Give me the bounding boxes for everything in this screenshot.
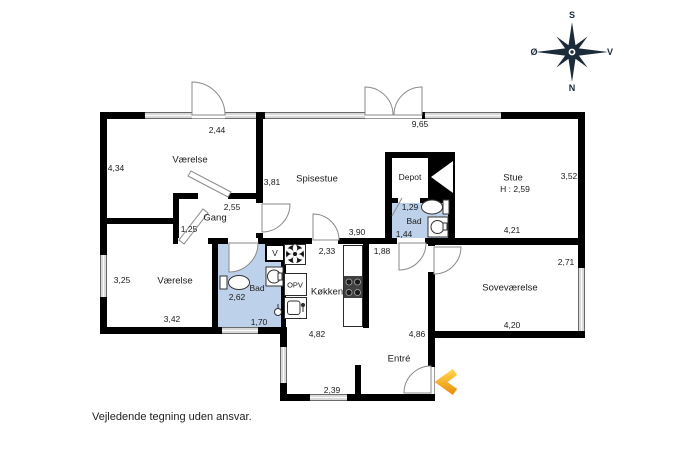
dimension: 2,44 bbox=[209, 126, 226, 135]
dimension: 9,65 bbox=[412, 120, 429, 129]
room-label-koekken: Køkken bbox=[311, 287, 343, 297]
dimension: 2,33 bbox=[319, 247, 336, 256]
dimension: 3,25 bbox=[114, 276, 131, 285]
toilet-icon bbox=[220, 276, 250, 290]
compass-north-label: N bbox=[569, 83, 576, 93]
dimension: 2,62 bbox=[229, 293, 246, 302]
room-label-depot: Depot bbox=[399, 173, 422, 182]
dimension: 1,25 bbox=[181, 225, 198, 234]
room-label-gang: Gang bbox=[203, 213, 226, 223]
dimension: 1,70 bbox=[251, 318, 268, 327]
dimension: 4,86 bbox=[409, 330, 426, 339]
entrance-arrow-icon bbox=[441, 372, 455, 392]
dimension: 3,81 bbox=[264, 178, 281, 187]
extractor-fan-icon bbox=[286, 245, 305, 264]
compass-west-label: V bbox=[607, 47, 613, 57]
room-label-stue: Stue bbox=[503, 173, 523, 183]
room-label-sovevaerelse: Soveværelse bbox=[482, 283, 537, 293]
room-label-bad-mid: Bad bbox=[406, 217, 421, 226]
ceiling-height-label: H : 2,59 bbox=[500, 185, 530, 194]
washing-machine-label: V bbox=[272, 249, 278, 258]
dimension: 1,29 bbox=[402, 203, 419, 212]
dimension: 2,71 bbox=[558, 258, 575, 267]
dimension: 4,34 bbox=[108, 164, 125, 173]
room-label-spisestue: Spisestue bbox=[296, 174, 338, 184]
dimension: 3,42 bbox=[164, 315, 181, 324]
hand-basin-icon bbox=[428, 217, 448, 237]
shower-tap-icon bbox=[275, 304, 282, 316]
toilet-icon bbox=[422, 200, 450, 214]
floor-plan-page: S V N Ø Værelse Spisestue Stue H : 2,59 … bbox=[0, 0, 687, 457]
room-label-vaerelse-sw: Værelse bbox=[157, 276, 192, 286]
dimension: 2,39 bbox=[324, 386, 341, 395]
dimension: 4,20 bbox=[504, 321, 521, 330]
compass-east-label: Ø bbox=[530, 47, 537, 57]
dimension: 4,21 bbox=[504, 226, 521, 235]
dimension: 3,90 bbox=[349, 228, 366, 237]
depot-door-leaf bbox=[431, 161, 453, 193]
dimension: 3,52 bbox=[561, 172, 578, 181]
dishwasher-label: OPV bbox=[287, 281, 303, 289]
stove-icon bbox=[344, 276, 362, 298]
room-label-vaerelse-nw: Værelse bbox=[172, 155, 207, 165]
dimension: 1,44 bbox=[396, 230, 413, 239]
compass-south-label: S bbox=[569, 10, 575, 20]
dimension: 2,55 bbox=[224, 203, 241, 212]
kitchen-sink-icon bbox=[288, 301, 305, 315]
room-label-entre: Entré bbox=[388, 354, 411, 364]
compass-rose: S V N Ø bbox=[530, 6, 614, 94]
room-label-bad-sw: Bad bbox=[249, 284, 264, 293]
disclaimer-text: Vejledende tegning uden ansvar. bbox=[92, 411, 252, 423]
dimension: 1,88 bbox=[374, 247, 391, 256]
dimension: 4,82 bbox=[309, 330, 326, 339]
hand-basin-icon bbox=[266, 267, 283, 286]
